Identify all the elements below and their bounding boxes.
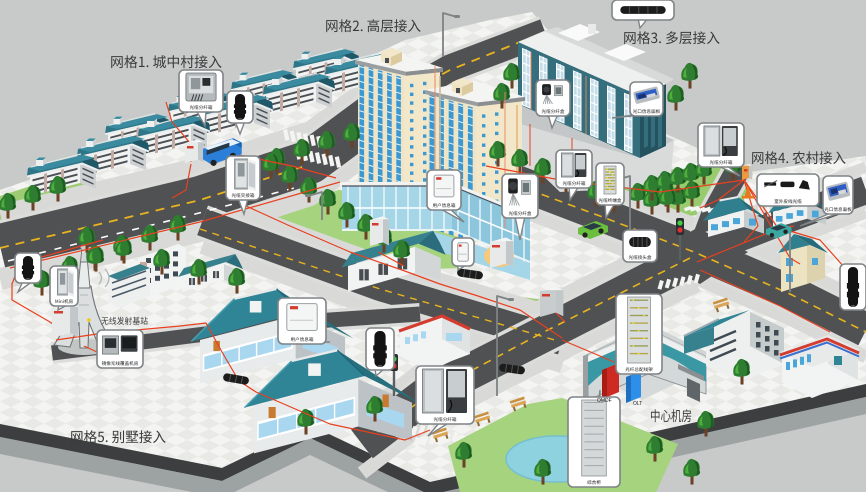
svg-text:OLT: OLT: [633, 401, 642, 407]
svg-text:OMDF: OMDF: [597, 398, 612, 404]
